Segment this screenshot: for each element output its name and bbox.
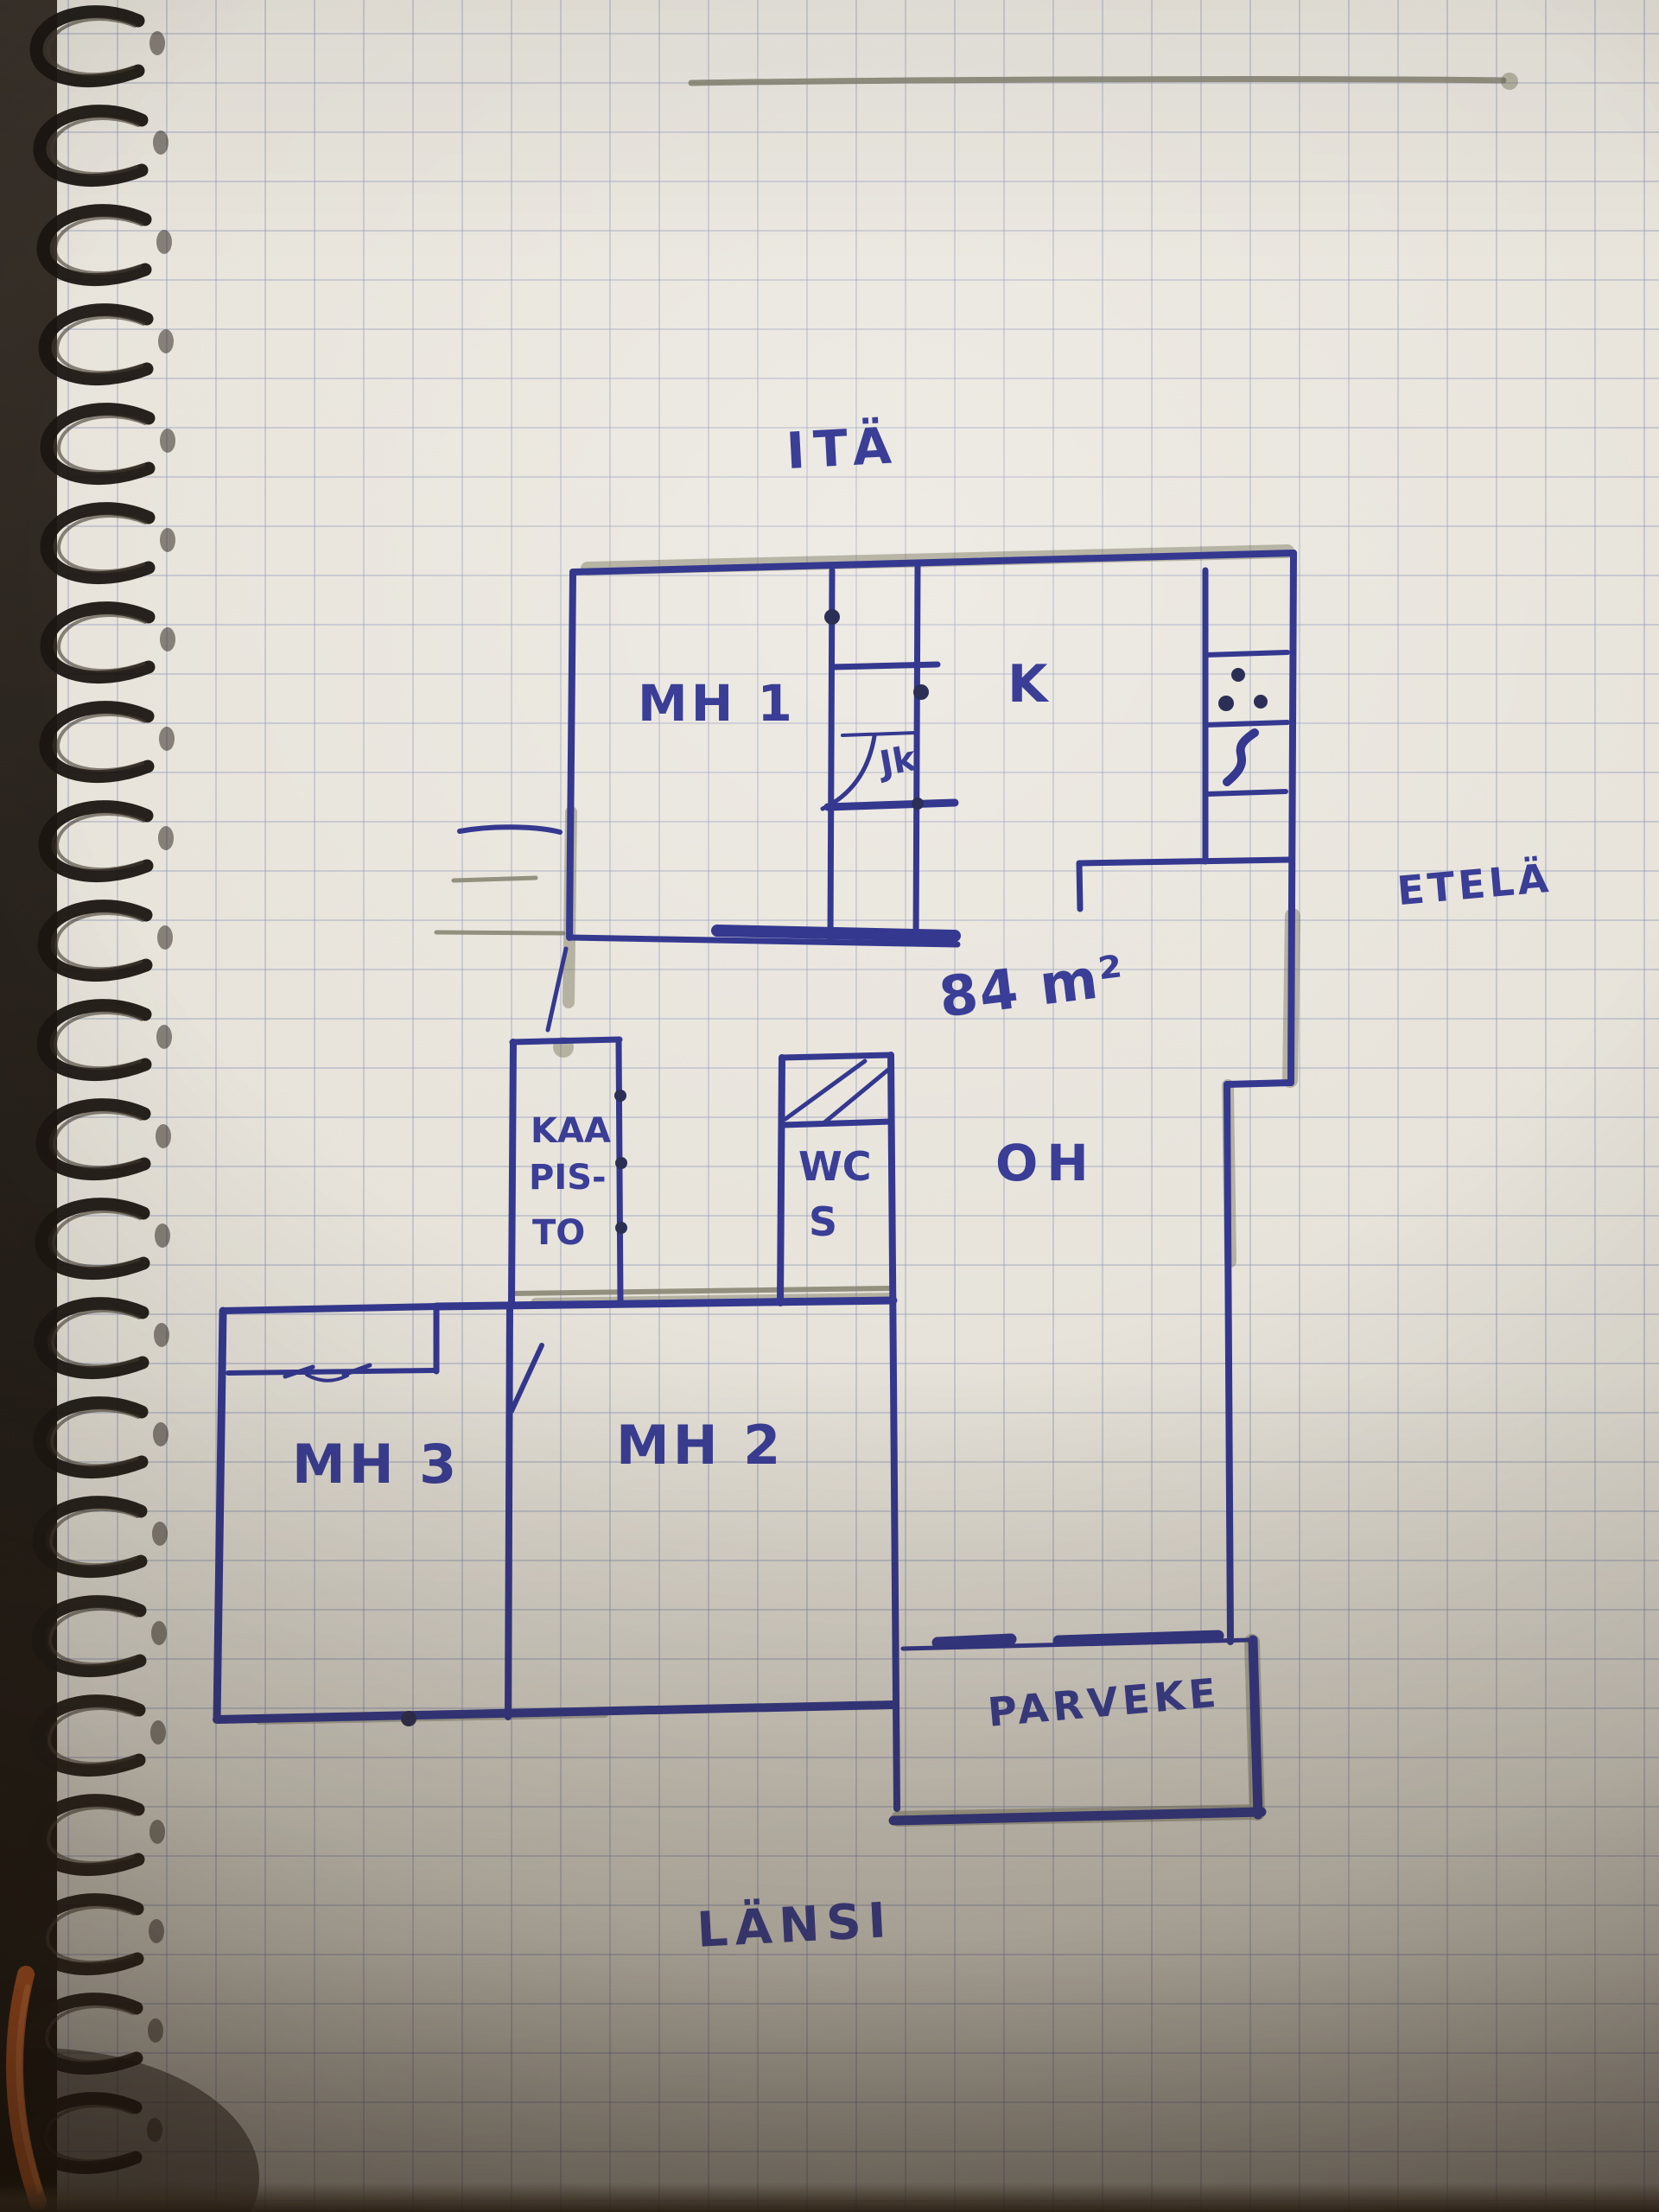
compass-south-label: ETELÄ [1395, 855, 1554, 914]
room-label-balcony: PARVEKE [986, 1669, 1222, 1736]
room-label-mh3: MH 3 [292, 1433, 460, 1496]
labels: ITÄ ETELÄ LÄNSI 84 m² MH 1 K Jk KAA PIS-… [292, 415, 1554, 1959]
shower-hatch [785, 1061, 865, 1119]
top-gray-line [691, 79, 1503, 83]
compass-west-label: LÄNSI [696, 1892, 894, 1959]
room-label-living-room: OH [995, 1134, 1097, 1192]
wall-corridor-east [916, 566, 918, 939]
balcony-east [1253, 1640, 1258, 1815]
notebook-photo: ITÄ ETELÄ LÄNSI 84 m² MH 1 K Jk KAA PIS-… [0, 0, 1659, 2212]
room-label-wc: WC [798, 1143, 872, 1190]
window-mh3 [228, 1370, 436, 1373]
wall-oh-east [1227, 1084, 1230, 1642]
room-label-stair-closet: Jk [874, 739, 920, 785]
wall-mh1-west [569, 572, 573, 938]
room-label-closet-2: PIS- [529, 1158, 607, 1198]
marker-smudges [536, 73, 1518, 1819]
area-label: 84 m² [936, 944, 1128, 1031]
wall-mh2-north [436, 1300, 893, 1306]
wc-west [780, 1058, 782, 1303]
floor-plan-drawing: ITÄ ETELÄ LÄNSI 84 m² MH 1 K Jk KAA PIS-… [0, 0, 1659, 2212]
room-label-mh2: MH 2 [616, 1414, 784, 1477]
room-label-mh1: MH 1 [638, 674, 796, 733]
room-label-kitchen: K [1007, 654, 1050, 715]
compass-east-label: ITÄ [785, 415, 901, 480]
room-label-closet-3: TO [532, 1213, 585, 1253]
closet-west [512, 1042, 513, 1301]
wall-east-upper [1291, 553, 1294, 1083]
room-label-closet-1: KAA [531, 1111, 611, 1151]
wall-kitchen-south [1079, 860, 1289, 863]
door-leaf-mh2 [512, 1345, 542, 1411]
walls [217, 553, 1294, 1821]
wall-east-step [1227, 1083, 1291, 1084]
spiral-binding [34, 12, 175, 2168]
closet-east [619, 1039, 620, 1301]
wall-mh3-north [223, 1306, 436, 1311]
window-mh1-south [717, 931, 955, 936]
wall-mh2-mh3-divider [508, 1306, 510, 1717]
sink-symbol [1227, 733, 1255, 782]
room-label-wc-s: S [809, 1198, 837, 1245]
wall-mh3-west [217, 1311, 223, 1719]
wall-corridor-west [830, 570, 832, 939]
wc-east-divider [891, 1055, 897, 1808]
balcony-door [938, 1639, 1011, 1643]
